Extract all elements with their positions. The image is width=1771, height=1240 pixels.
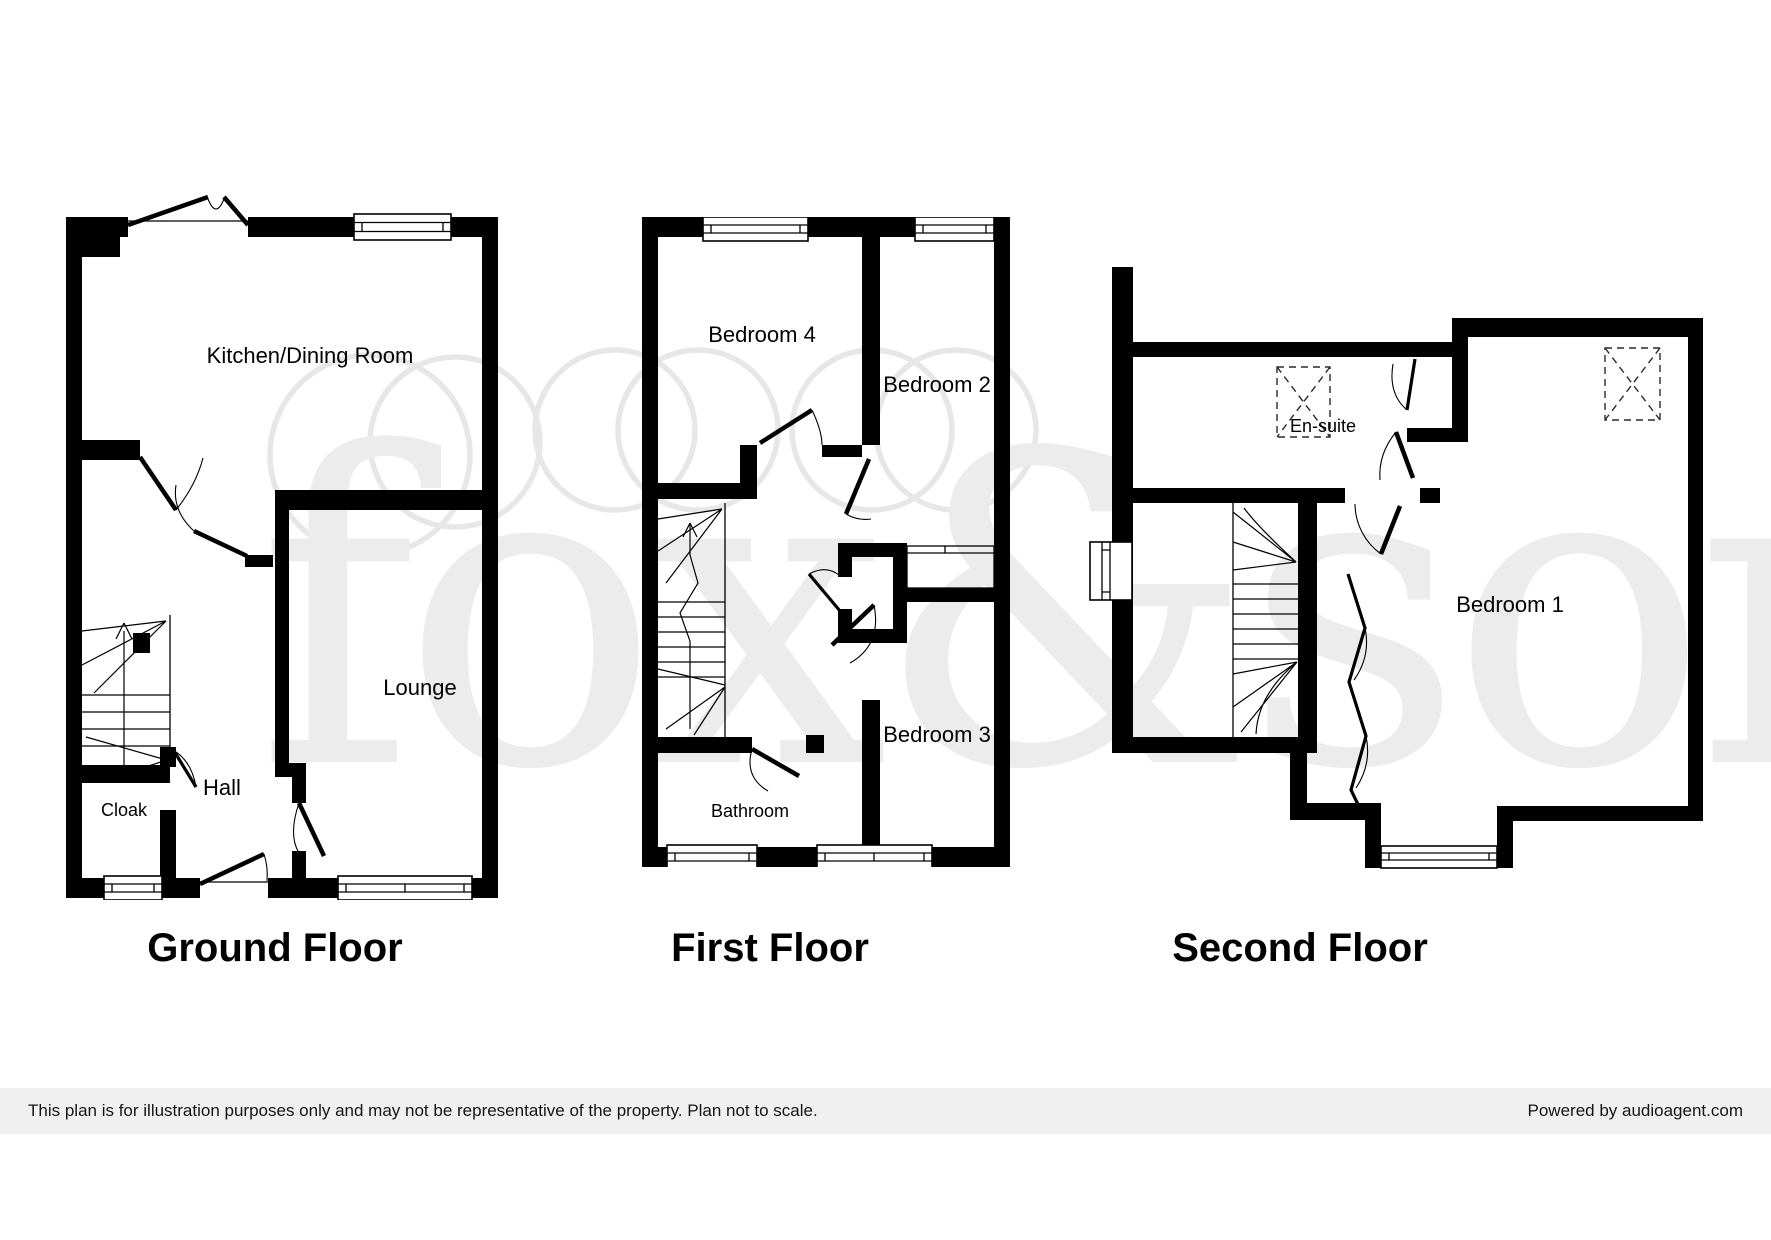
cloak-window: [104, 876, 162, 900]
room-label-cloak: Cloak: [101, 800, 148, 820]
bedroom2-window: [915, 217, 994, 241]
footer-disclaimer: This plan is for illustration purposes o…: [28, 1101, 818, 1121]
footer-bar: This plan is for illustration purposes o…: [0, 1088, 1771, 1134]
front-door: [200, 854, 268, 884]
second-floor-plan: En-suite Bedroom 1: [1078, 267, 1706, 872]
first-floor-title: First Floor: [565, 926, 975, 971]
room-label-ensuite: En-suite: [1290, 416, 1356, 436]
lounge-window: [338, 876, 472, 900]
bedroom1-door: [1355, 504, 1400, 554]
second-stairs: [1233, 500, 1298, 737]
bedroom4-window: [703, 217, 808, 241]
first-doors: [750, 410, 876, 791]
second-walls: [1112, 267, 1703, 868]
kitchen-double-doors: [140, 457, 247, 556]
french-doors: [128, 197, 248, 225]
kitchen-window: [354, 214, 451, 240]
first-floor-plan: Bedroom 4 Bedroom 2 Bedroom 3 Bathroom: [642, 217, 1010, 867]
skylight-bedroom1: [1605, 348, 1660, 420]
room-label-kitchen-dining: Kitchen/Dining Room: [207, 343, 414, 368]
first-windows: [667, 217, 994, 867]
bedroom2-door: [846, 459, 871, 519]
second-floor-title: Second Floor: [1095, 926, 1505, 971]
fitted-wardrobe: [907, 546, 994, 588]
second-labels: En-suite Bedroom 1: [1290, 416, 1564, 617]
room-label-bedroom3: Bedroom 3: [883, 722, 991, 747]
ground-stairs: [82, 615, 170, 781]
room-label-bedroom2: Bedroom 2: [883, 372, 991, 397]
ensuite-cupboard-door: [1392, 359, 1415, 410]
room-label-bathroom: Bathroom: [711, 801, 789, 821]
ground-floor-plan: Kitchen/Dining Room Lounge Hall Cloak: [66, 195, 498, 900]
room-label-lounge: Lounge: [383, 675, 456, 700]
floorplan-page: fox&sons: [0, 0, 1771, 1240]
bathroom-window: [667, 845, 757, 867]
second-doors: [1355, 359, 1415, 554]
cupboard-door: [809, 570, 840, 611]
room-label-hall: Hall: [203, 775, 241, 800]
bedroom4-door: [760, 410, 822, 445]
dormer-window: [1381, 846, 1497, 868]
side-window: [1090, 542, 1132, 600]
footer-credit: Powered by audioagent.com: [1528, 1101, 1743, 1121]
room-label-bedroom1: Bedroom 1: [1456, 592, 1564, 617]
bathroom-door: [750, 749, 799, 791]
cloak-door: [174, 751, 196, 787]
bedroom3-window: [817, 845, 932, 867]
ground-floor-title: Ground Floor: [70, 926, 480, 971]
ground-walls: [66, 217, 498, 898]
first-stairs: [658, 503, 725, 737]
eaves-wardrobe-doors: [1348, 574, 1368, 817]
room-label-bedroom4: Bedroom 4: [708, 322, 816, 347]
lounge-door: [294, 803, 325, 856]
